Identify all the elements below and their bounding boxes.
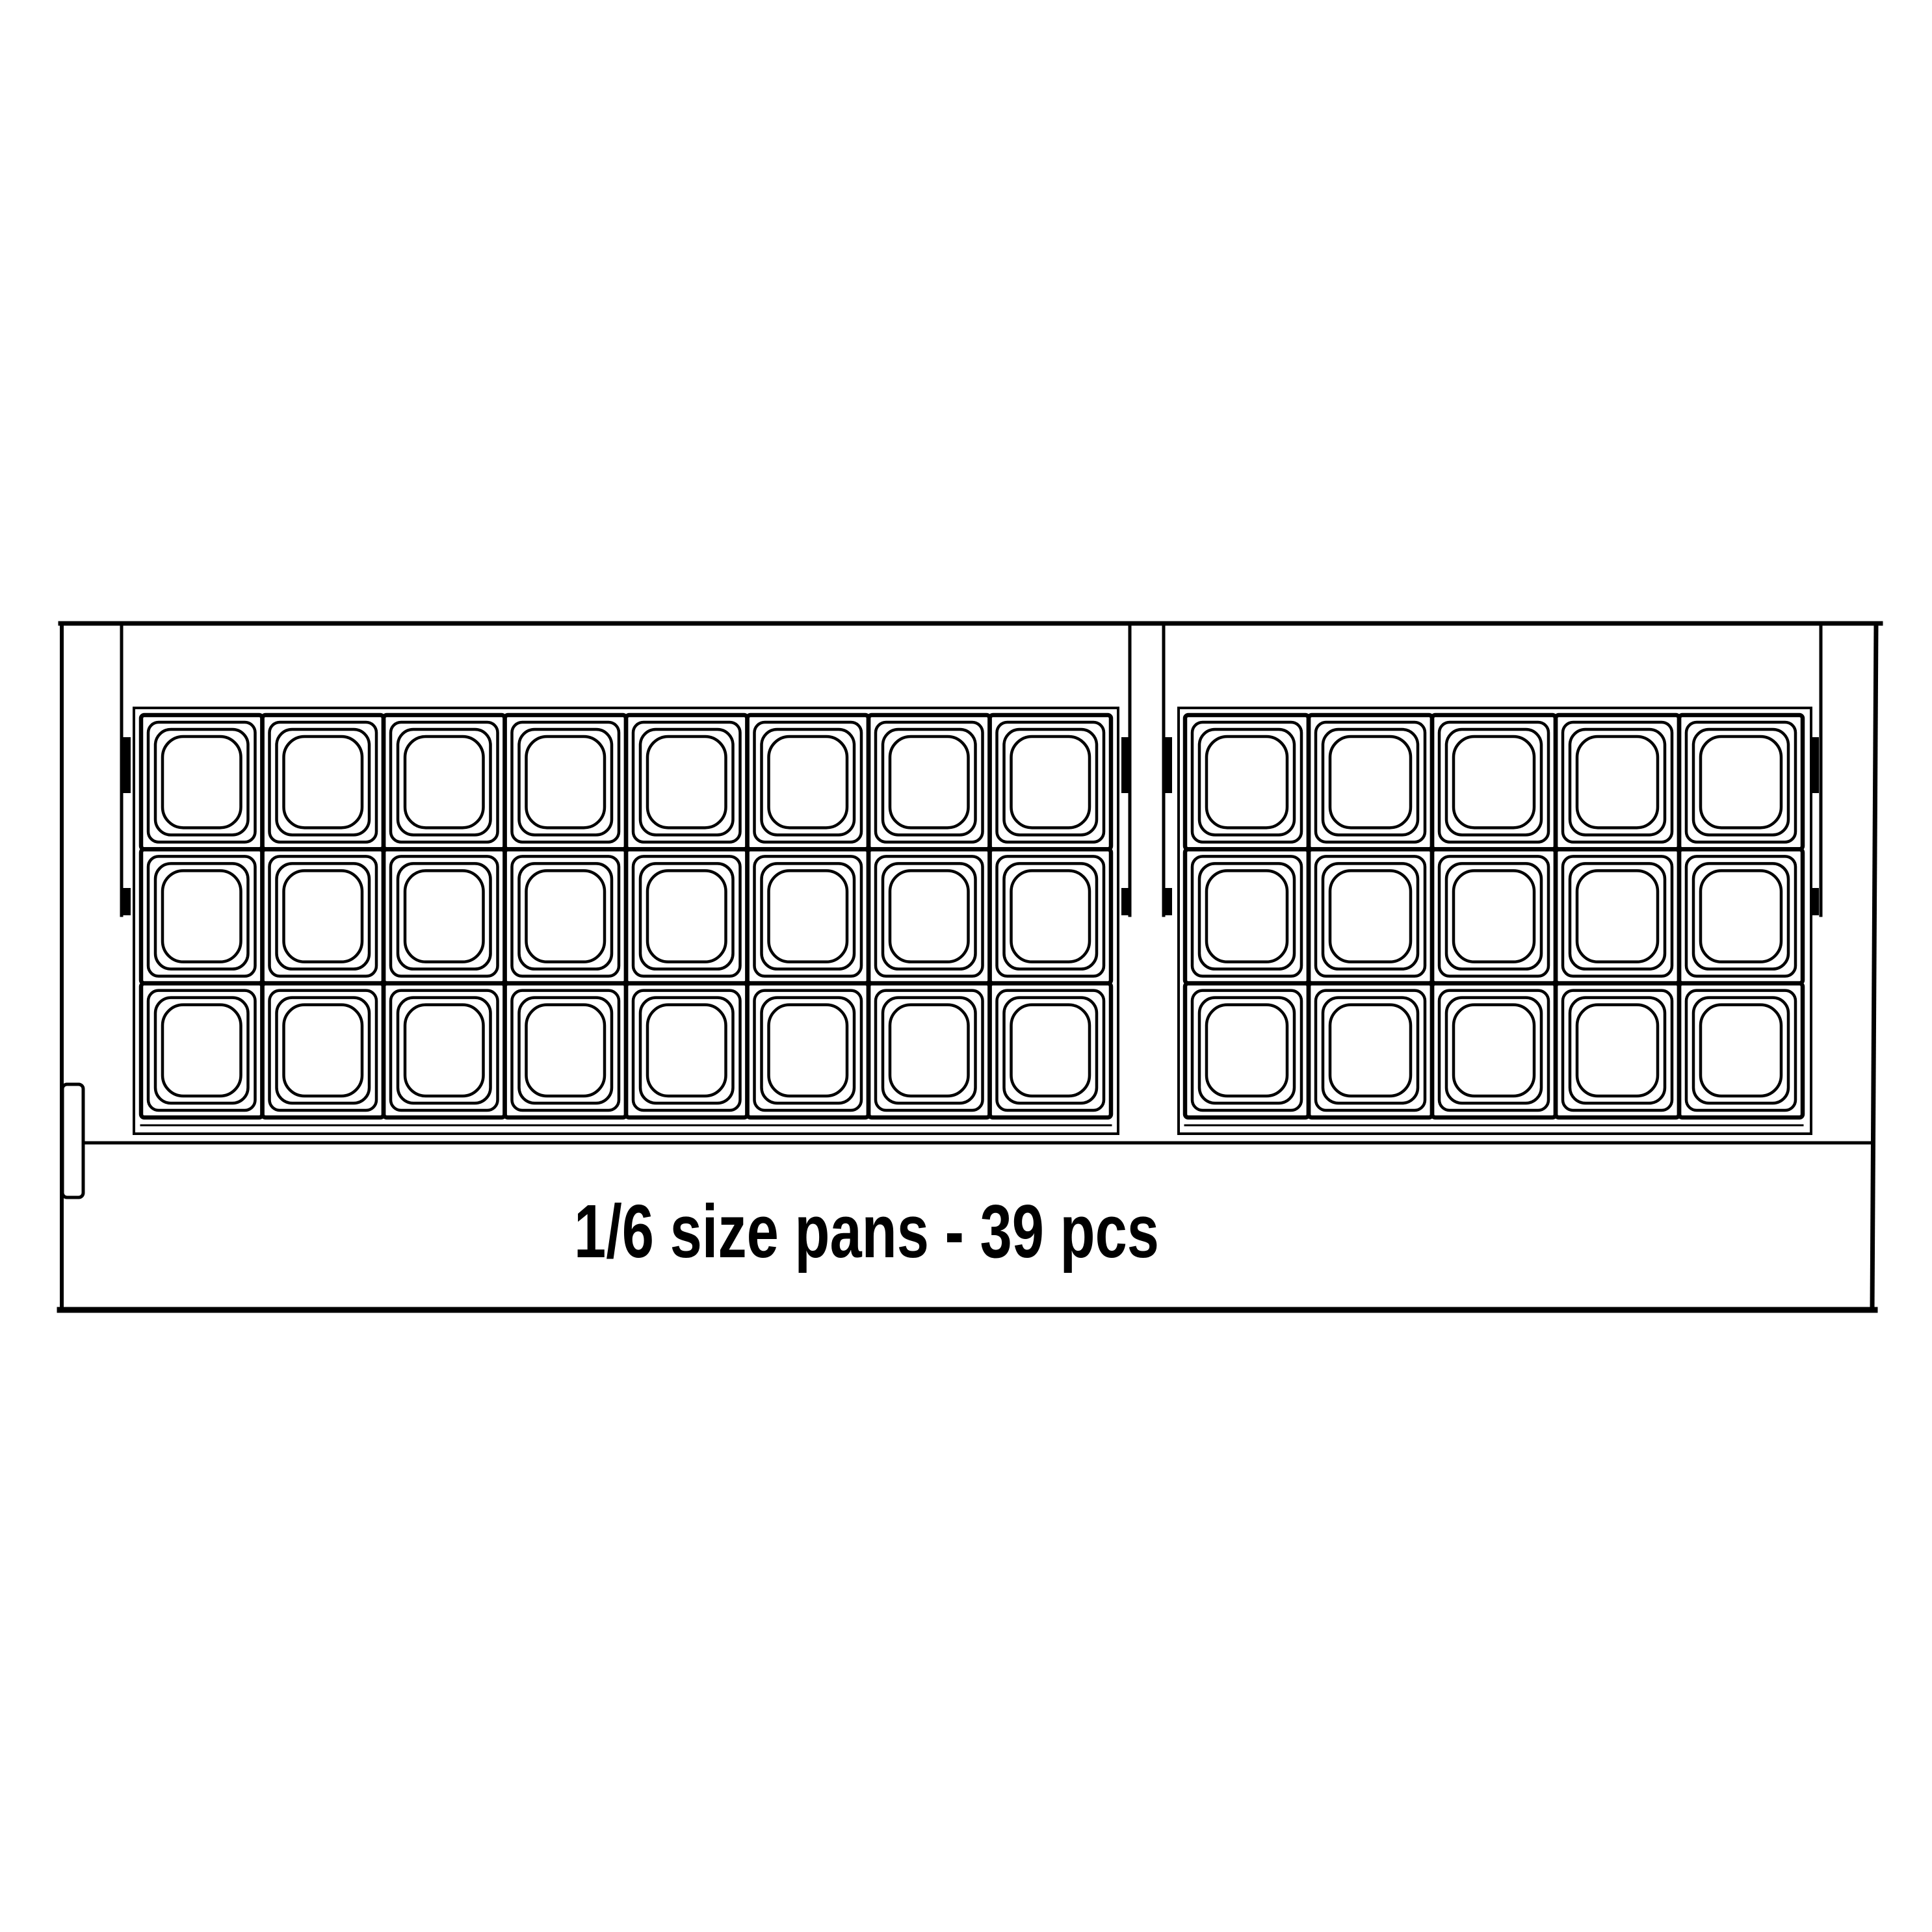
clip xyxy=(1164,888,1172,915)
clip xyxy=(123,888,131,915)
clip xyxy=(1121,737,1129,793)
clip xyxy=(123,737,131,793)
side-bracket-tab xyxy=(62,1084,83,1197)
drawing-page: 1/6 size pans - 39 pcs xyxy=(0,0,1932,1932)
clip xyxy=(1164,737,1172,793)
clip xyxy=(1121,888,1129,915)
background xyxy=(0,0,1932,1932)
prep-table-pan-layout-diagram: 1/6 size pans - 39 pcs xyxy=(0,0,1932,1932)
caption-label: 1/6 size pans - 39 pcs xyxy=(574,1189,1159,1273)
